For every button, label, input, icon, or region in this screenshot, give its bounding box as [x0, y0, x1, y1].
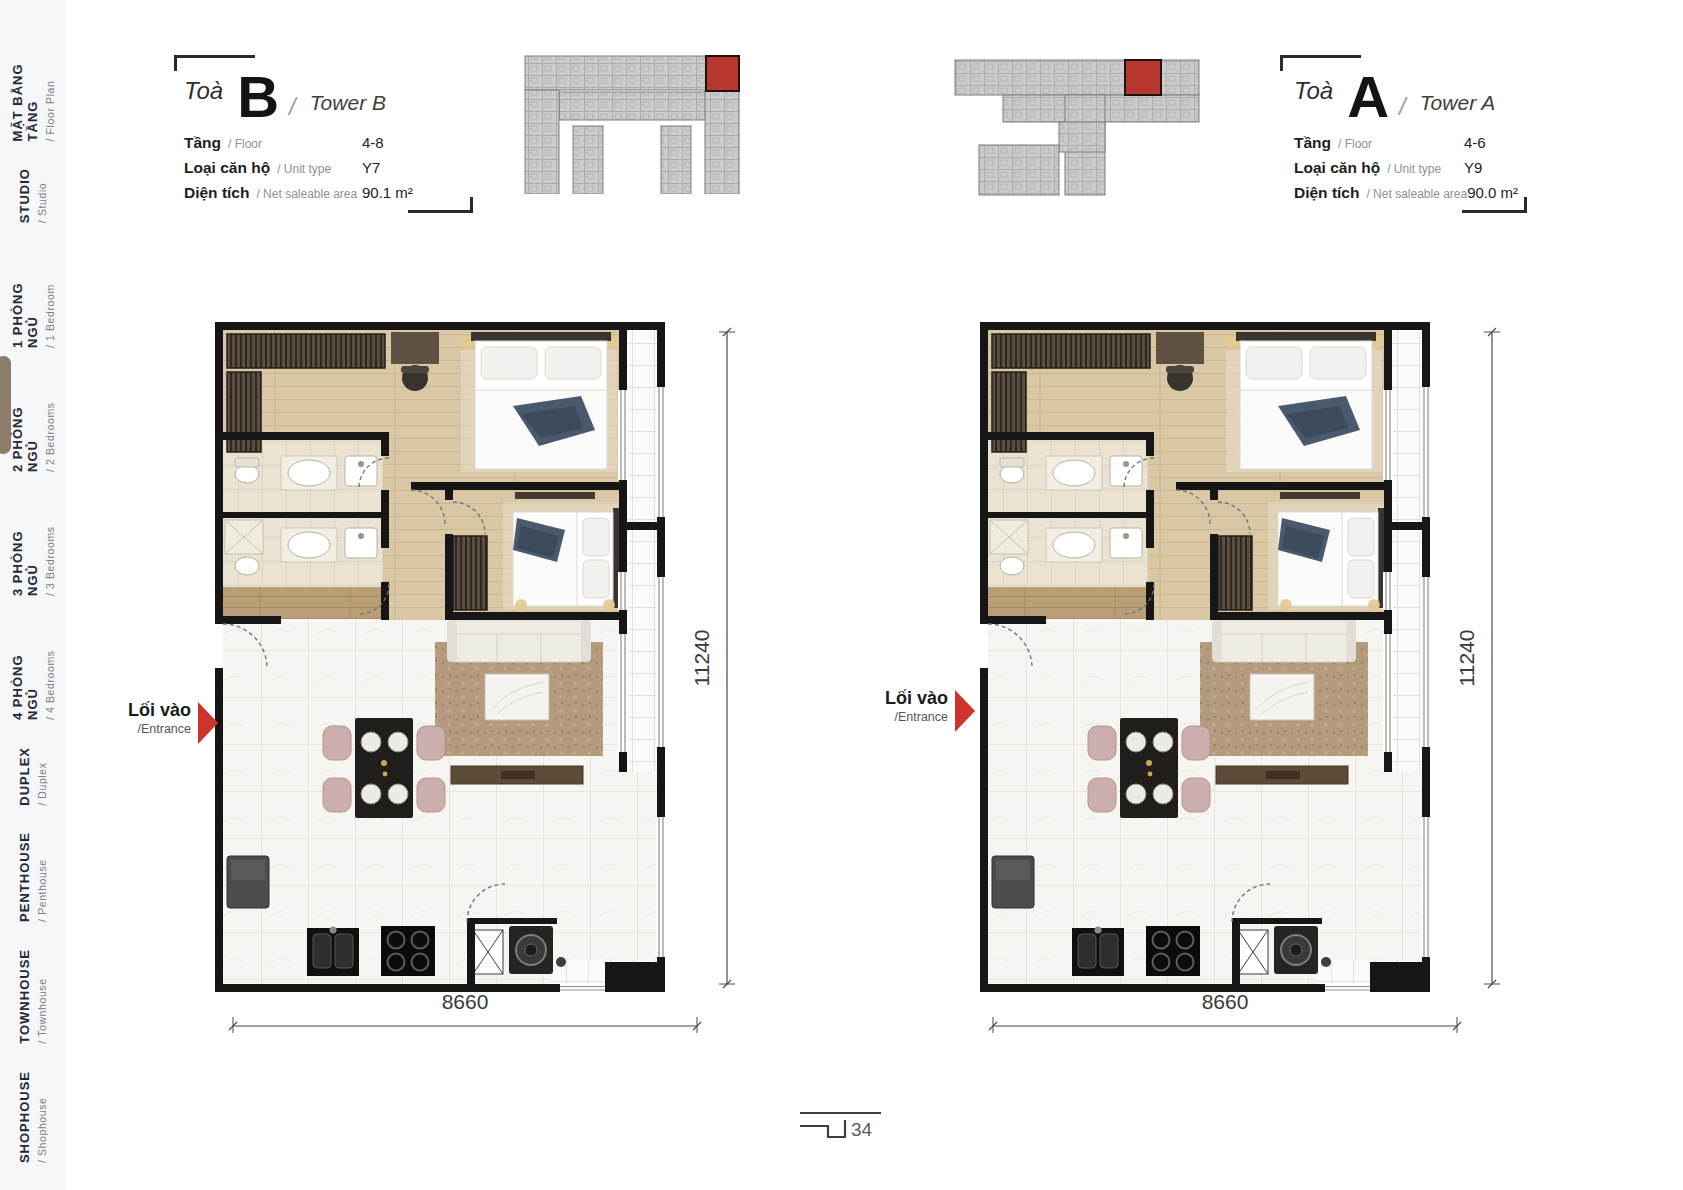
value: Y9: [1464, 159, 1552, 176]
slash-separator: /: [1399, 93, 1406, 121]
sidebar-item-subtitle: / 3 Bedrooms: [44, 499, 56, 596]
sidebar-item-shophouse[interactable]: SHOPHOUSE / Shophouse: [17, 1071, 48, 1163]
sidebar-item-3-bedroom[interactable]: 3 PHÒNG NGỦ / 3 Bedrooms: [10, 499, 56, 596]
entrance-label-tower-a: Lối vào /Entrance: [830, 688, 975, 732]
category-sidebar: MẶT BẰNG TẦNG / Floor Plan STUDIO / Stud…: [0, 0, 65, 1190]
highlighted-unit: [1125, 60, 1161, 95]
sidebar-item-1-bedroom[interactable]: 1 PHÒNG NGỦ / 1 Bedroom: [10, 251, 56, 348]
dimension-height-tower-b: 11240: [690, 324, 738, 992]
keyplan-tower-b: [487, 52, 745, 194]
tower-b-title: Toà B / Tower B: [184, 69, 450, 124]
slash-separator: /: [289, 93, 296, 121]
label-en: / Unit type: [1387, 162, 1464, 176]
sidebar-item-duplex[interactable]: DUPLEX / Duplex: [17, 747, 48, 806]
sidebar-item-subtitle: / 4 Bedrooms: [44, 623, 56, 720]
info-row-unit-type: Loại căn hộ / Unit type Y7: [184, 159, 450, 177]
sidebar-item-townhouse[interactable]: TOWNHOUSE / Townhouse: [17, 949, 48, 1044]
label-vi: Tầng: [184, 134, 221, 152]
info-row-floor: Tầng / Floor 4-8: [184, 134, 450, 152]
toa-label: Toà: [184, 77, 223, 105]
entrance-label-tower-b: Lối vào /Entrance: [95, 700, 218, 744]
corner-bracket-icon: [408, 197, 473, 213]
dimension-line: [225, 1016, 705, 1034]
label-vi: Loại căn hộ: [1294, 159, 1380, 177]
label-en: / Unit type: [277, 162, 362, 176]
sidebar-item-subtitle: / Studio: [36, 168, 48, 223]
label-en: / Floor: [228, 137, 362, 151]
page-number: 34: [851, 1119, 873, 1140]
tower-name-en: Tower A: [1420, 91, 1495, 115]
tower-letter: B: [237, 69, 279, 124]
sidebar-item-title: 4 PHÒNG NGỦ: [10, 623, 40, 720]
dimension-width-tower-a: 8660: [985, 990, 1465, 1036]
sidebar-item-subtitle: / 2 Bedrooms: [44, 375, 56, 472]
entrance-label-en: /Entrance: [95, 722, 191, 736]
value: 4-8: [362, 134, 450, 151]
label-vi: Diện tích: [1294, 184, 1359, 202]
info-row-unit-type: Loại căn hộ / Unit type Y9: [1294, 159, 1552, 177]
sidebar-item-floor-plan[interactable]: MẶT BẰNG TẦNG / Floor Plan: [10, 24, 56, 141]
corner-bracket-icon: [174, 55, 255, 71]
highlighted-unit: [706, 56, 739, 91]
floor-plan-tower-a: [980, 322, 1430, 992]
sidebar-item-subtitle: / Townhouse: [36, 949, 48, 1044]
label-vi: Tầng: [1294, 134, 1331, 152]
sidebar-item-subtitle: / Duplex: [36, 747, 48, 806]
dimension-line: [985, 1016, 1465, 1034]
label-vi: Diện tích: [184, 184, 249, 202]
dimension-value: 11240: [690, 630, 714, 687]
sidebar-item-title: TOWNHOUSE: [17, 949, 32, 1044]
value: Y7: [362, 159, 450, 176]
sidebar-item-subtitle: / Penthouse: [36, 832, 48, 922]
sidebar-item-title: PENTHOUSE: [17, 832, 32, 922]
sidebar-item-title: 3 PHÒNG NGỦ: [10, 499, 40, 596]
sidebar-item-subtitle: / 1 Bedroom: [44, 251, 56, 348]
label-vi: Loại căn hộ: [184, 159, 270, 177]
tower-b-info: Toà B / Tower B Tầng / Floor 4-8 Loại că…: [170, 55, 450, 209]
sidebar-item-penthouse[interactable]: PENTHOUSE / Penthouse: [17, 832, 48, 922]
sidebar-item-title: 2 PHÒNG NGỦ: [10, 375, 40, 472]
dimension-value: 8660: [985, 990, 1465, 1014]
tower-letter: A: [1347, 69, 1389, 124]
sidebar-item-title: MẶT BẰNG TẦNG: [10, 24, 40, 141]
sidebar-item-title: STUDIO: [17, 168, 32, 223]
sidebar-item-subtitle: / Shophouse: [36, 1071, 48, 1163]
floor-plan-tower-b: [215, 322, 665, 992]
sidebar-item-4-bedroom[interactable]: 4 PHÒNG NGỦ / 4 Bedrooms: [10, 623, 56, 720]
label-en: / Floor: [1338, 137, 1464, 151]
sidebar-item-studio[interactable]: STUDIO / Studio: [17, 168, 48, 223]
sidebar-item-2-bedroom[interactable]: 2 PHÒNG NGỦ / 2 Bedrooms: [10, 375, 56, 472]
dimension-height-tower-a: 11240: [1455, 324, 1503, 992]
corner-bracket-icon: [1462, 197, 1527, 213]
entrance-arrow-icon: [955, 690, 975, 732]
floor-plan-page: MẶT BẰNG TẦNG / Floor Plan STUDIO / Stud…: [0, 0, 1683, 1190]
entrance-label-en: /Entrance: [830, 710, 948, 724]
page-number-marker: 34: [799, 1110, 883, 1144]
tower-name-en: Tower B: [310, 91, 386, 115]
keyplan-tower-a: [915, 50, 1205, 200]
label-en: / Net saleable area: [256, 187, 362, 201]
sidebar-item-subtitle: / Floor Plan: [44, 24, 56, 141]
toa-label: Toà: [1294, 77, 1333, 105]
sidebar-item-title: 1 PHÒNG NGỦ: [10, 251, 40, 348]
value: 4-6: [1464, 134, 1552, 151]
info-row-floor: Tầng / Floor 4-6: [1294, 134, 1552, 152]
tower-a-info: Toà A / Tower A Tầng / Floor 4-6 Loại că…: [1280, 55, 1552, 209]
label-en: / Net saleable area: [1366, 187, 1467, 201]
entrance-label-vi: Lối vào: [830, 688, 948, 709]
sidebar-item-title: DUPLEX: [17, 747, 32, 806]
sidebar-item-title: SHOPHOUSE: [17, 1071, 32, 1163]
entrance-label-vi: Lối vào: [95, 700, 191, 721]
tower-a-title: Toà A / Tower A: [1294, 69, 1552, 124]
entrance-arrow-icon: [198, 702, 218, 744]
dimension-value: 8660: [225, 990, 705, 1014]
page-corner-glyph: 34: [799, 1110, 883, 1140]
dimension-width-tower-b: 8660: [225, 990, 705, 1036]
corner-bracket-icon: [1280, 55, 1361, 71]
dimension-value: 11240: [1455, 630, 1479, 687]
